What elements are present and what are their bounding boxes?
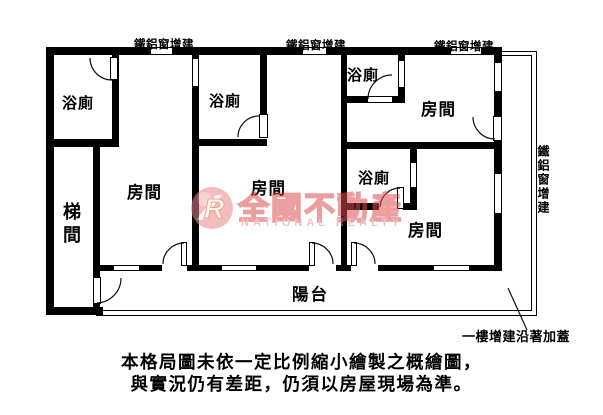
door-arc-room3-addition [473, 117, 495, 139]
label-window-addition-3: 鐵鋁窗增建 [434, 38, 494, 54]
floor-plan: 浴廁 浴廁 浴廁 浴廁 房間 房間 房間 房間 梯間 陽台 鐵鋁窗增建 鐵鋁窗增… [0, 0, 603, 415]
door-arc-room4-balcony [354, 243, 375, 264]
label-bathroom-3: 浴廁 [347, 64, 379, 85]
label-bathroom-2: 浴廁 [209, 90, 241, 111]
door-arc-bath2 [238, 116, 259, 137]
label-bathroom-4: 浴廁 [358, 167, 390, 188]
label-room-3: 房間 [421, 96, 456, 120]
label-room-4: 房間 [408, 217, 443, 241]
label-ground-floor-addition: 一樓增建沿著加蓋 [462, 326, 570, 345]
door-arc-stair-balcony [97, 278, 121, 303]
door-arc-bath1 [90, 58, 112, 80]
label-window-addition-2: 鐵鋁窗增建 [286, 37, 346, 53]
disclaimer-line-2: 與實況仍有差距，仍須以房屋現場為準。 [0, 371, 603, 396]
label-stairwell: 梯間 [58, 202, 84, 248]
label-window-addition-right: 鐵鋁窗增建 [535, 145, 552, 215]
label-bathroom-1: 浴廁 [62, 92, 94, 113]
label-room-2: 房間 [251, 175, 286, 199]
label-window-addition-1: 鐵鋁窗增建 [134, 36, 194, 52]
door-arc-room2-balcony [312, 243, 333, 264]
door-arc-bath4 [380, 188, 400, 207]
label-room-1: 房間 [127, 179, 162, 203]
label-balcony: 陽台 [292, 281, 329, 305]
annotation-pointer-line [508, 288, 527, 330]
door-arc-room1-balcony [163, 243, 184, 264]
